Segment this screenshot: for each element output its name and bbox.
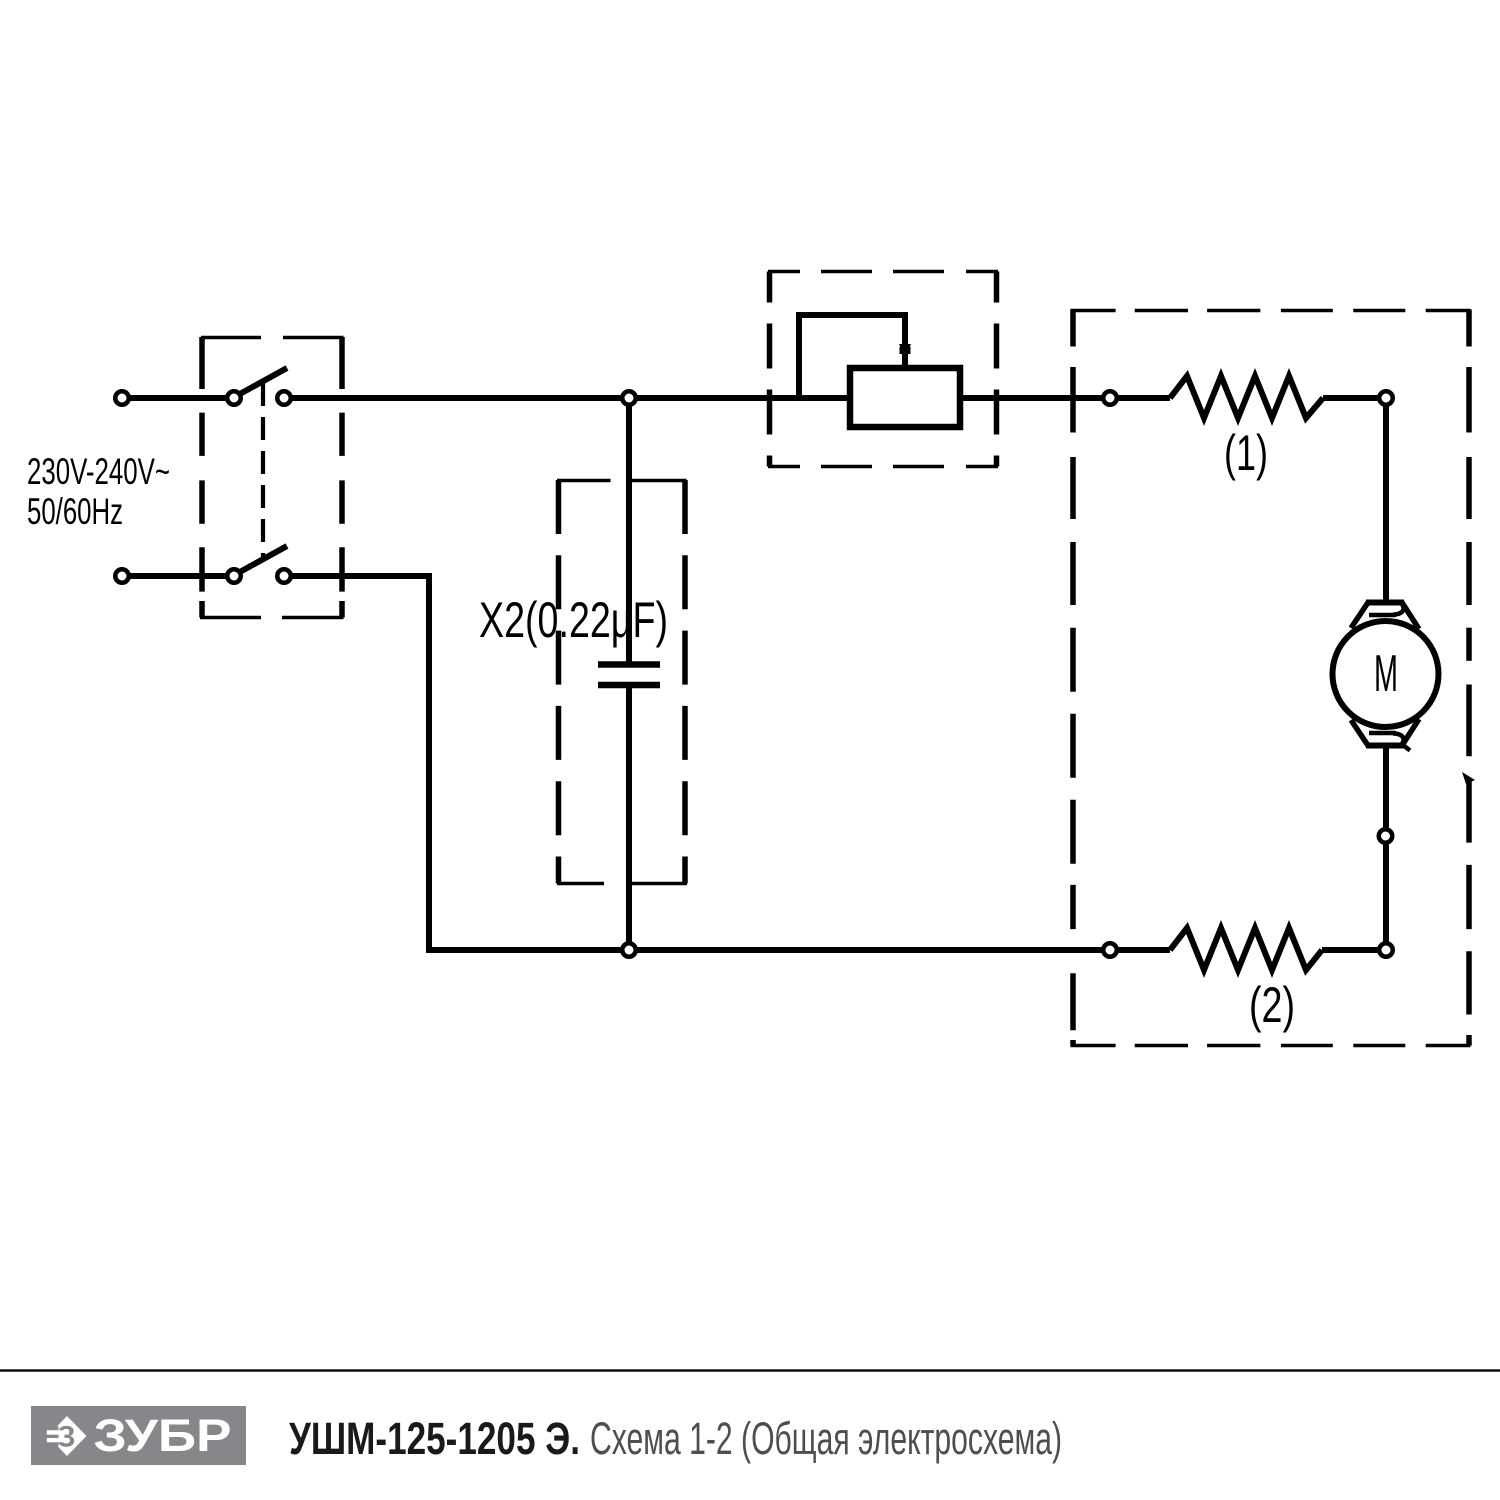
svg-text:(2): (2)	[1249, 977, 1295, 1033]
svg-text:УШМ-125-1205 Э.: УШМ-125-1205 Э.	[289, 1413, 580, 1464]
svg-text:ЗУБР: ЗУБР	[94, 1410, 232, 1461]
svg-text:M: M	[1374, 645, 1398, 703]
svg-text:230V-240V~: 230V-240V~	[27, 451, 170, 492]
svg-text:З: З	[57, 1421, 76, 1454]
svg-text:Схема 1-2 (Общая электросхема): Схема 1-2 (Общая электросхема)	[590, 1413, 1062, 1464]
svg-text:(1): (1)	[1224, 425, 1268, 481]
svg-text:X2(0.22µF): X2(0.22µF)	[479, 592, 668, 648]
svg-text:50/60Hz: 50/60Hz	[27, 491, 123, 532]
